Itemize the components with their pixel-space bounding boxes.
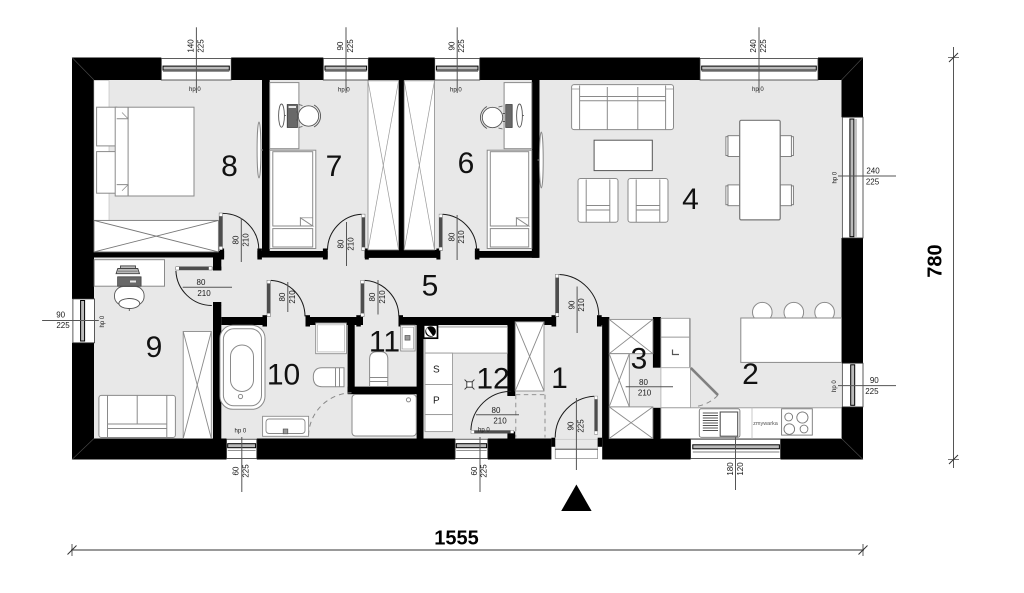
svg-text:60: 60 (232, 466, 241, 475)
svg-text:60: 60 (470, 466, 479, 475)
svg-text:90: 90 (56, 311, 65, 320)
svg-text:80: 80 (492, 406, 501, 415)
svg-text:225: 225 (56, 321, 70, 330)
svg-text:S: S (433, 365, 440, 376)
svg-text:7: 7 (326, 150, 343, 183)
svg-text:hp 0: hp 0 (832, 380, 838, 392)
svg-text:225: 225 (865, 387, 879, 396)
svg-text:225: 225 (241, 464, 250, 478)
svg-text:P: P (433, 396, 440, 407)
svg-text:80: 80 (337, 239, 346, 248)
svg-text:hp 0: hp 0 (100, 315, 106, 327)
svg-text:8: 8 (221, 150, 238, 183)
svg-text:zmywarka: zmywarka (753, 421, 779, 427)
svg-text:780: 780 (925, 244, 947, 277)
svg-text:120: 120 (736, 462, 745, 476)
svg-text:210: 210 (288, 290, 297, 304)
svg-text:240: 240 (866, 167, 880, 176)
svg-text:80: 80 (368, 292, 377, 301)
svg-text:3: 3 (631, 343, 648, 376)
svg-text:225: 225 (196, 39, 205, 53)
svg-text:1: 1 (551, 362, 568, 395)
svg-text:225: 225 (866, 178, 880, 187)
svg-text:140: 140 (187, 39, 196, 53)
svg-text:210: 210 (378, 290, 387, 304)
svg-text:210: 210 (241, 233, 250, 247)
svg-text:hp 0: hp 0 (450, 88, 462, 94)
svg-text:hp 0: hp 0 (833, 171, 839, 183)
svg-text:hp 0: hp 0 (478, 428, 490, 434)
svg-text:10: 10 (267, 359, 300, 392)
svg-text:80: 80 (232, 235, 241, 244)
svg-text:90: 90 (870, 376, 879, 385)
svg-text:hp 0: hp 0 (752, 87, 764, 93)
svg-text:80: 80 (278, 292, 287, 301)
svg-text:1555: 1555 (434, 528, 479, 550)
svg-text:4: 4 (682, 183, 699, 216)
svg-text:210: 210 (197, 289, 211, 298)
svg-text:210: 210 (347, 237, 356, 251)
svg-text:240: 240 (749, 39, 758, 53)
svg-text:225: 225 (576, 419, 585, 433)
svg-text:80: 80 (447, 232, 456, 241)
svg-text:hp 0: hp 0 (338, 88, 350, 94)
svg-text:6: 6 (458, 147, 475, 180)
svg-text:90: 90 (336, 41, 345, 50)
svg-text:225: 225 (346, 39, 355, 53)
svg-text:80: 80 (639, 378, 648, 387)
svg-text:210: 210 (457, 230, 466, 244)
svg-text:hp 0: hp 0 (189, 87, 201, 93)
svg-text:12: 12 (476, 363, 509, 396)
svg-text:225: 225 (457, 39, 466, 53)
svg-text:90: 90 (567, 421, 576, 430)
svg-text:90: 90 (447, 41, 456, 50)
svg-text:9: 9 (146, 331, 163, 364)
svg-text:90: 90 (567, 300, 576, 309)
svg-text:11: 11 (369, 326, 400, 359)
svg-text:hp 0: hp 0 (235, 429, 247, 435)
svg-text:2: 2 (742, 358, 759, 391)
svg-text:210: 210 (638, 388, 652, 397)
svg-text:225: 225 (480, 464, 489, 478)
svg-text:210: 210 (493, 417, 507, 426)
svg-text:210: 210 (577, 298, 586, 312)
svg-text:180: 180 (726, 462, 735, 476)
svg-text:80: 80 (197, 278, 206, 287)
svg-text:5: 5 (422, 270, 439, 303)
svg-text:225: 225 (759, 39, 768, 53)
